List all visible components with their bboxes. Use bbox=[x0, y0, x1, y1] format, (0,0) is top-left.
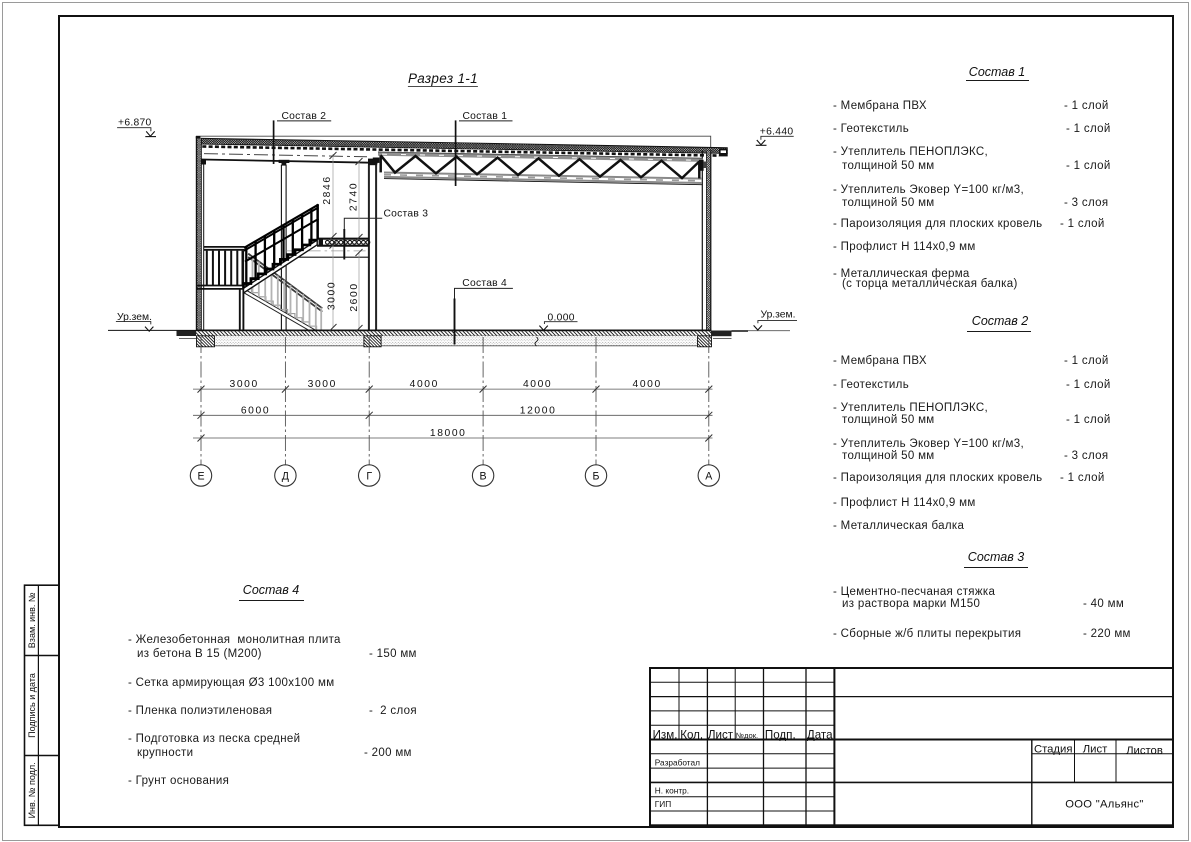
svg-text:Изм.: Изм. bbox=[653, 728, 678, 741]
svg-text:Кол.: Кол. bbox=[680, 728, 703, 741]
svg-text:Инв. № подл.: Инв. № подл. bbox=[27, 762, 37, 818]
svg-text:Подп.: Подп. bbox=[765, 728, 796, 741]
svg-text:Лист: Лист bbox=[708, 728, 734, 741]
svg-text:ООО "Альянс": ООО "Альянс" bbox=[1065, 798, 1143, 810]
svg-text:Лист: Лист bbox=[1083, 744, 1108, 756]
svg-text:Взам. инв. №: Взам. инв. № bbox=[27, 592, 37, 648]
svg-text:Разработал: Разработал bbox=[655, 758, 700, 768]
svg-text:Стадия: Стадия bbox=[1034, 744, 1073, 756]
svg-text:Подпись и дата: Подпись и дата bbox=[27, 673, 37, 738]
svg-text:ГИП: ГИП bbox=[655, 799, 671, 809]
svg-text:Н. контр.: Н. контр. bbox=[655, 786, 689, 796]
svg-text:Дата: Дата bbox=[807, 728, 833, 741]
svg-text:Листов: Листов bbox=[1126, 745, 1163, 757]
svg-text:№док.: №док. bbox=[736, 731, 758, 740]
